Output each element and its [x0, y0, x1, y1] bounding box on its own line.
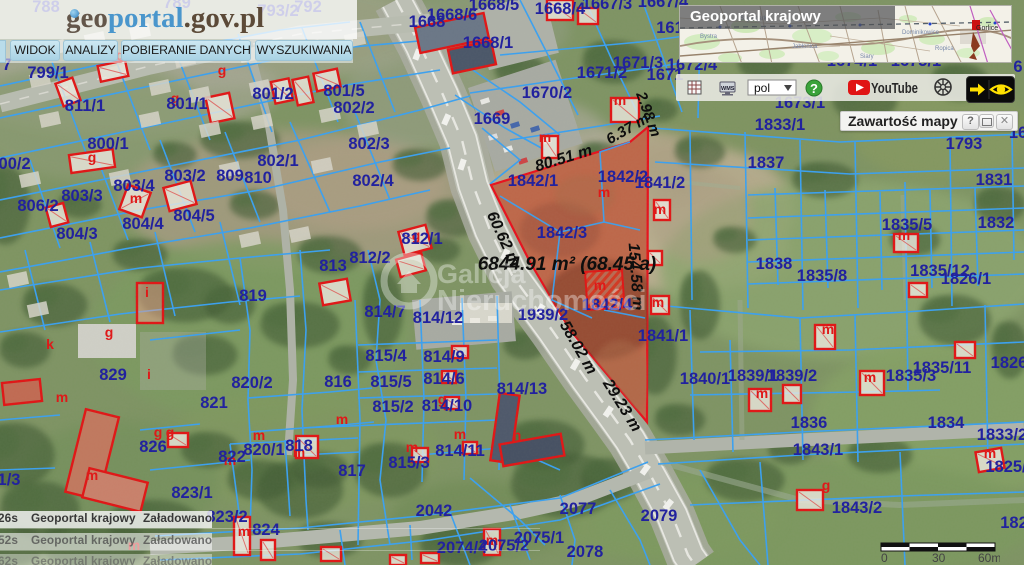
svg-text:Gorlice: Gorlice — [976, 25, 998, 32]
svg-text:YouTube: YouTube — [871, 80, 918, 97]
svg-text:Ropica: Ropica — [935, 46, 954, 52]
svg-text:0: 0 — [881, 551, 888, 564]
svg-text:pol: pol — [754, 81, 770, 95]
svg-text:?: ? — [810, 81, 818, 96]
svg-text:Dominikowice: Dominikowice — [902, 30, 940, 36]
svg-text:Bystra: Bystra — [700, 34, 718, 40]
svg-text:30: 30 — [932, 551, 946, 564]
svg-text:Jabłonica: Jabłonica — [792, 44, 818, 50]
svg-text:WMS: WMS — [721, 86, 735, 92]
svg-text:60m: 60m — [978, 551, 1000, 564]
svg-text:Siary: Siary — [860, 54, 874, 60]
